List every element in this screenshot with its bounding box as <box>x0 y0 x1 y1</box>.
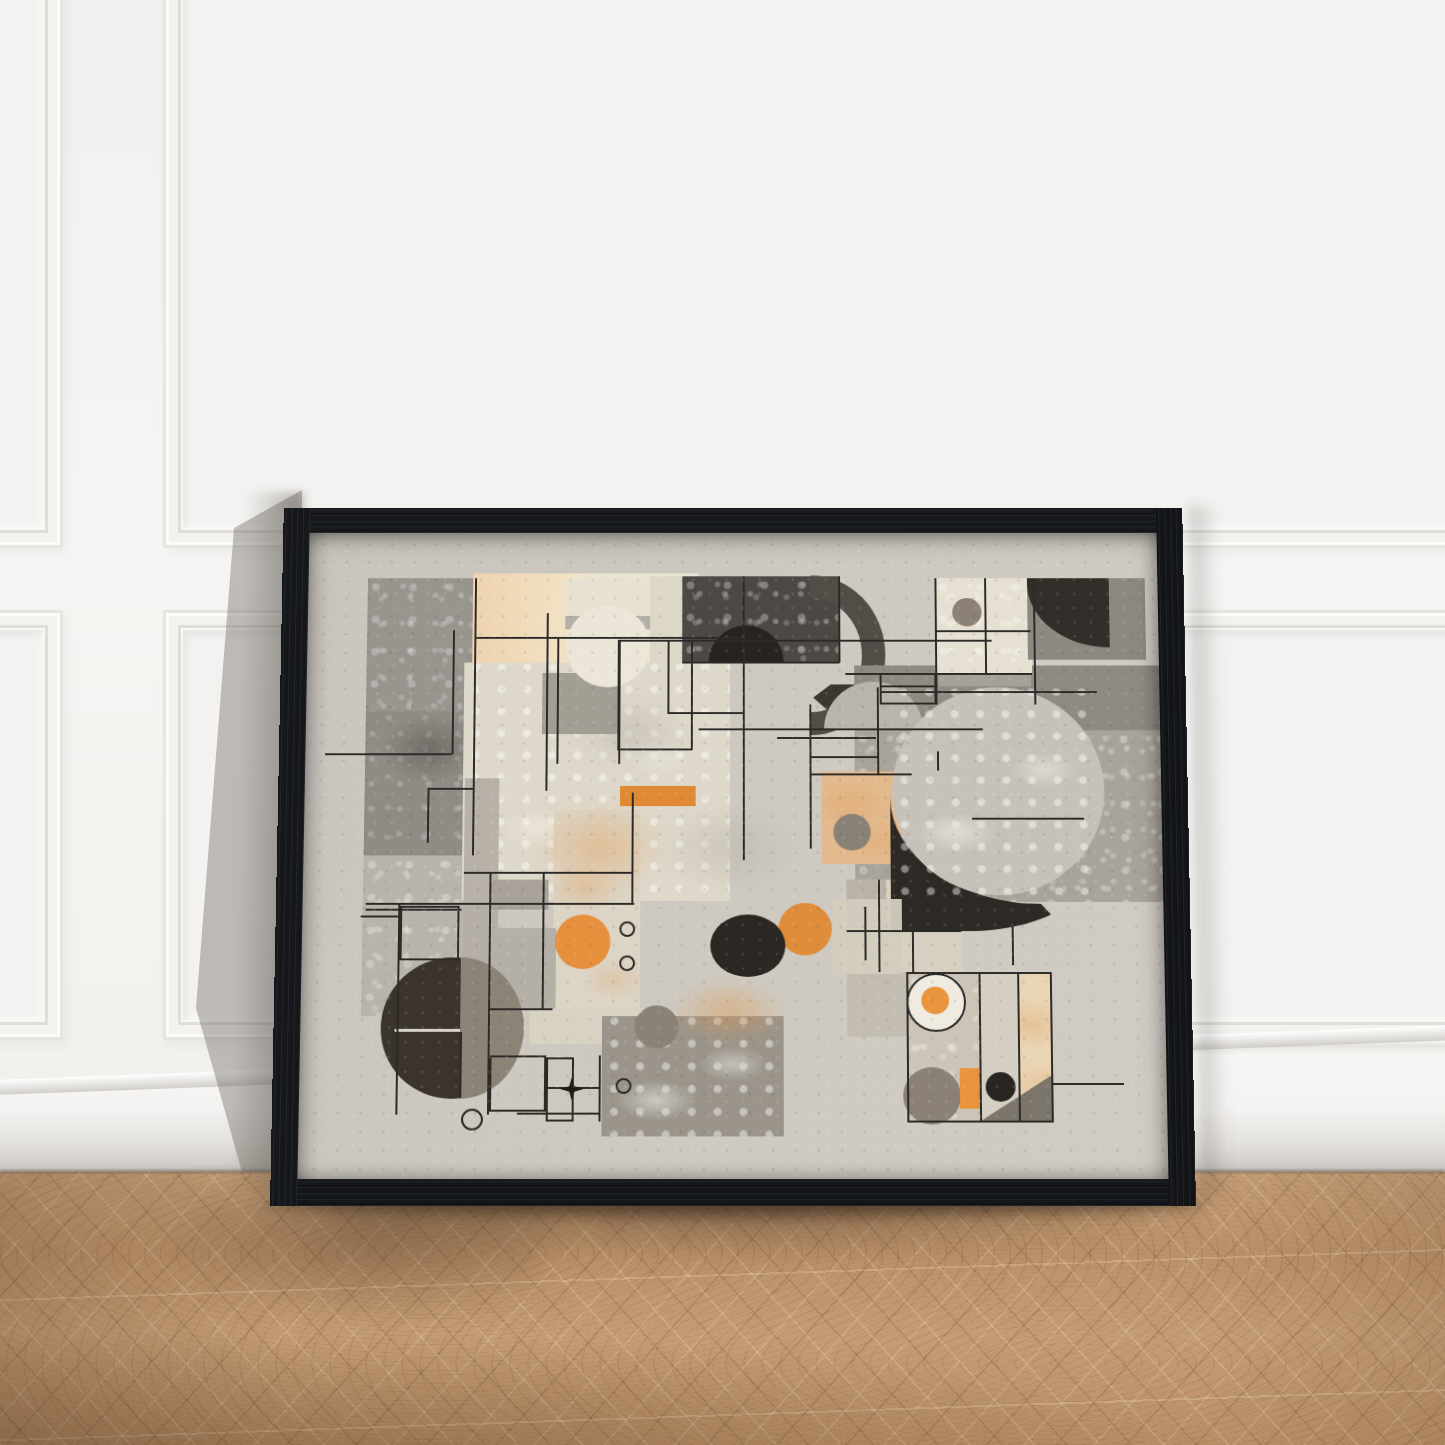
ring-small <box>619 955 635 971</box>
gray-smudge-2 <box>658 804 796 891</box>
line <box>325 753 452 755</box>
band-under-grid-square <box>938 673 1031 686</box>
gray-circle-in-square <box>952 598 982 626</box>
small-gray-square <box>491 880 549 910</box>
poster-frame <box>270 508 1196 1206</box>
line <box>743 576 745 860</box>
line <box>361 916 401 918</box>
abstract-artwork <box>298 533 1169 1179</box>
line <box>474 637 742 639</box>
line <box>810 773 912 775</box>
line-box <box>880 673 937 704</box>
upper-left-panel-inner <box>0 0 43 528</box>
frame-wood <box>270 508 1196 1206</box>
orange-circle-right <box>778 903 832 956</box>
floor-spread-shadow <box>120 1196 550 1336</box>
gray-circle-in-peach <box>833 814 871 851</box>
ring-small <box>616 1078 632 1094</box>
ring-small <box>619 921 635 937</box>
cover-rect <box>833 899 903 974</box>
line-box <box>617 640 693 751</box>
line <box>937 751 939 770</box>
frame-rail-bottom <box>270 1179 1196 1206</box>
gray-circle-center <box>635 1005 679 1048</box>
line <box>838 576 840 662</box>
line <box>428 788 473 790</box>
orange-soft-patch-2 <box>668 979 787 1044</box>
line <box>880 691 1097 693</box>
line <box>864 907 866 961</box>
line <box>972 818 1084 820</box>
frame-rail-top <box>283 508 1182 533</box>
line <box>366 903 635 905</box>
mottled-moon-circle <box>891 687 1106 895</box>
line <box>682 662 839 664</box>
line <box>667 712 742 714</box>
line <box>810 756 878 758</box>
line-box <box>489 1055 546 1111</box>
orange-soft-patch-1 <box>530 801 668 894</box>
block-under-grid <box>847 972 908 1037</box>
line <box>777 737 876 739</box>
line <box>667 640 669 714</box>
line-box <box>400 906 460 961</box>
upper-left-panel <box>0 0 63 548</box>
orange-circle-left <box>555 915 611 970</box>
upper-wide-panel <box>163 0 1445 548</box>
lower-left-panel-inner <box>0 630 43 1020</box>
black-blob <box>710 915 785 977</box>
line <box>880 685 937 687</box>
lower-left-panel <box>0 610 63 1040</box>
line <box>845 673 1032 675</box>
line <box>1053 1083 1124 1085</box>
poster-print <box>298 533 1169 1179</box>
line <box>699 728 983 730</box>
ring-small <box>461 1109 483 1131</box>
line <box>517 1113 601 1115</box>
line <box>598 1055 600 1121</box>
white-line-in-circle <box>395 1029 461 1032</box>
room-photo <box>0 0 1445 1445</box>
upper-wide-panel-inner <box>183 0 1445 528</box>
line <box>488 1008 552 1010</box>
line <box>935 630 1031 632</box>
